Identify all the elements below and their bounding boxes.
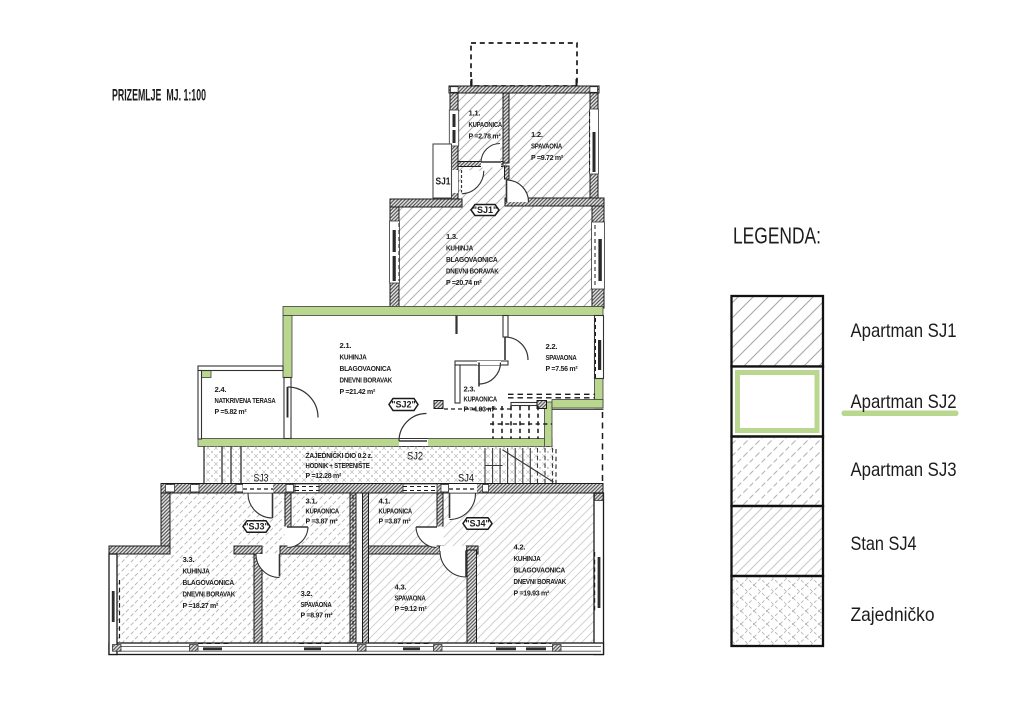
svg-text:"SJ1": "SJ1" — [473, 205, 498, 215]
svg-text:KUHINJA: KUHINJA — [183, 567, 211, 576]
svg-text:ZAJEDNIČKI DIO 0.2 z.: ZAJEDNIČKI DIO 0.2 z. — [306, 451, 373, 460]
svg-text:1.2.: 1.2. — [531, 130, 543, 139]
svg-text:1.3.: 1.3. — [446, 232, 458, 241]
svg-text:4.1.: 4.1. — [379, 497, 391, 506]
svg-text:4.3.: 4.3. — [395, 583, 407, 592]
svg-text:LEGENDA:: LEGENDA: — [733, 223, 821, 249]
svg-text:2.4.: 2.4. — [215, 385, 227, 394]
svg-text:3.1.: 3.1. — [306, 497, 318, 506]
svg-text:SPAVAONA: SPAVAONA — [301, 600, 333, 609]
svg-text:P =9.12 m²: P =9.12 m² — [395, 606, 428, 613]
svg-text:4.2.: 4.2. — [514, 543, 526, 552]
svg-text:P =4.03 m²: P =4.03 m² — [464, 407, 497, 414]
svg-text:"SJ3": "SJ3" — [244, 522, 269, 532]
svg-text:PRIZEMLJE MJ. 1:100: PRIZEMLJE MJ. 1:100 — [112, 87, 206, 105]
svg-text:BLAGOVAONICA: BLAGOVAONICA — [514, 566, 566, 575]
svg-text:P =2.78 m²: P =2.78 m² — [469, 134, 502, 141]
svg-text:"SJ2": "SJ2" — [391, 400, 416, 410]
svg-text:SJ3: SJ3 — [254, 473, 269, 485]
svg-text:P =9.72 m²: P =9.72 m² — [531, 155, 564, 162]
svg-text:P =21.42 m²: P =21.42 m² — [340, 389, 376, 396]
svg-text:Stan SJ4: Stan SJ4 — [851, 533, 917, 555]
svg-text:KUHINJA: KUHINJA — [446, 244, 474, 253]
svg-text:Apartman SJ3: Apartman SJ3 — [851, 459, 957, 481]
svg-text:SPAVAONA: SPAVAONA — [531, 142, 563, 151]
svg-text:P =7.56 m²: P =7.56 m² — [546, 366, 579, 373]
svg-text:P =3.87 m²: P =3.87 m² — [379, 519, 412, 526]
svg-text:DNEVNI BORAVAK: DNEVNI BORAVAK — [446, 267, 499, 276]
svg-text:DNEVNI BORAVAK: DNEVNI BORAVAK — [340, 376, 393, 385]
svg-text:SPAVAONA: SPAVAONA — [395, 593, 427, 602]
svg-text:3.2.: 3.2. — [301, 589, 313, 598]
svg-text:P =3.87 m²: P =3.87 m² — [306, 519, 339, 526]
svg-text:P =8.97 m²: P =8.97 m² — [301, 613, 334, 620]
svg-text:2.3.: 2.3. — [464, 385, 476, 394]
svg-text:SPAVAONA: SPAVAONA — [546, 353, 578, 362]
svg-text:Zajedničko: Zajedničko — [851, 604, 935, 626]
svg-text:DNEVNI BORAVAK: DNEVNI BORAVAK — [183, 590, 236, 599]
svg-text:KUPAONICA: KUPAONICA — [464, 395, 498, 404]
svg-text:P =12.28 m²: P =12.28 m² — [306, 473, 342, 480]
svg-text:Apartman SJ2: Apartman SJ2 — [851, 391, 957, 413]
svg-text:NATKRIVENA TERASA: NATKRIVENA TERASA — [215, 396, 277, 405]
svg-text:P =19.93 m²: P =19.93 m² — [514, 591, 550, 598]
svg-text:SJ4: SJ4 — [458, 473, 474, 485]
svg-text:1.1.: 1.1. — [469, 109, 481, 118]
svg-text:BLAGOVAONICA: BLAGOVAONICA — [183, 578, 235, 587]
svg-text:BLAGOVAONICA: BLAGOVAONICA — [446, 255, 498, 264]
svg-text:KUHINJA: KUHINJA — [340, 353, 368, 362]
svg-text:KUHINJA: KUHINJA — [514, 554, 542, 563]
svg-text:Apartman SJ1: Apartman SJ1 — [851, 320, 957, 342]
svg-text:SJ1: SJ1 — [436, 176, 451, 188]
svg-text:DNEVNI BORAVAK: DNEVNI BORAVAK — [514, 577, 567, 586]
svg-text:"SJ4": "SJ4" — [465, 519, 490, 529]
svg-text:P =5.82 m²: P =5.82 m² — [215, 409, 248, 416]
svg-text:KUPAONICA: KUPAONICA — [306, 507, 340, 516]
svg-text:2.1.: 2.1. — [340, 341, 352, 350]
svg-text:HODNIK + STEPENIŠTE: HODNIK + STEPENIŠTE — [306, 461, 370, 470]
svg-text:3.3.: 3.3. — [183, 555, 195, 564]
svg-text:P =18.27 m²: P =18.27 m² — [183, 603, 219, 610]
svg-text:KUPAONICA: KUPAONICA — [379, 507, 413, 516]
svg-text:SJ2: SJ2 — [407, 451, 423, 463]
svg-text:P =20.74 m²: P =20.74 m² — [446, 280, 482, 287]
svg-text:2.2.: 2.2. — [546, 342, 558, 351]
svg-text:KUPAONICA: KUPAONICA — [469, 120, 503, 129]
svg-text:BLAGOVAONICA: BLAGOVAONICA — [340, 364, 392, 373]
